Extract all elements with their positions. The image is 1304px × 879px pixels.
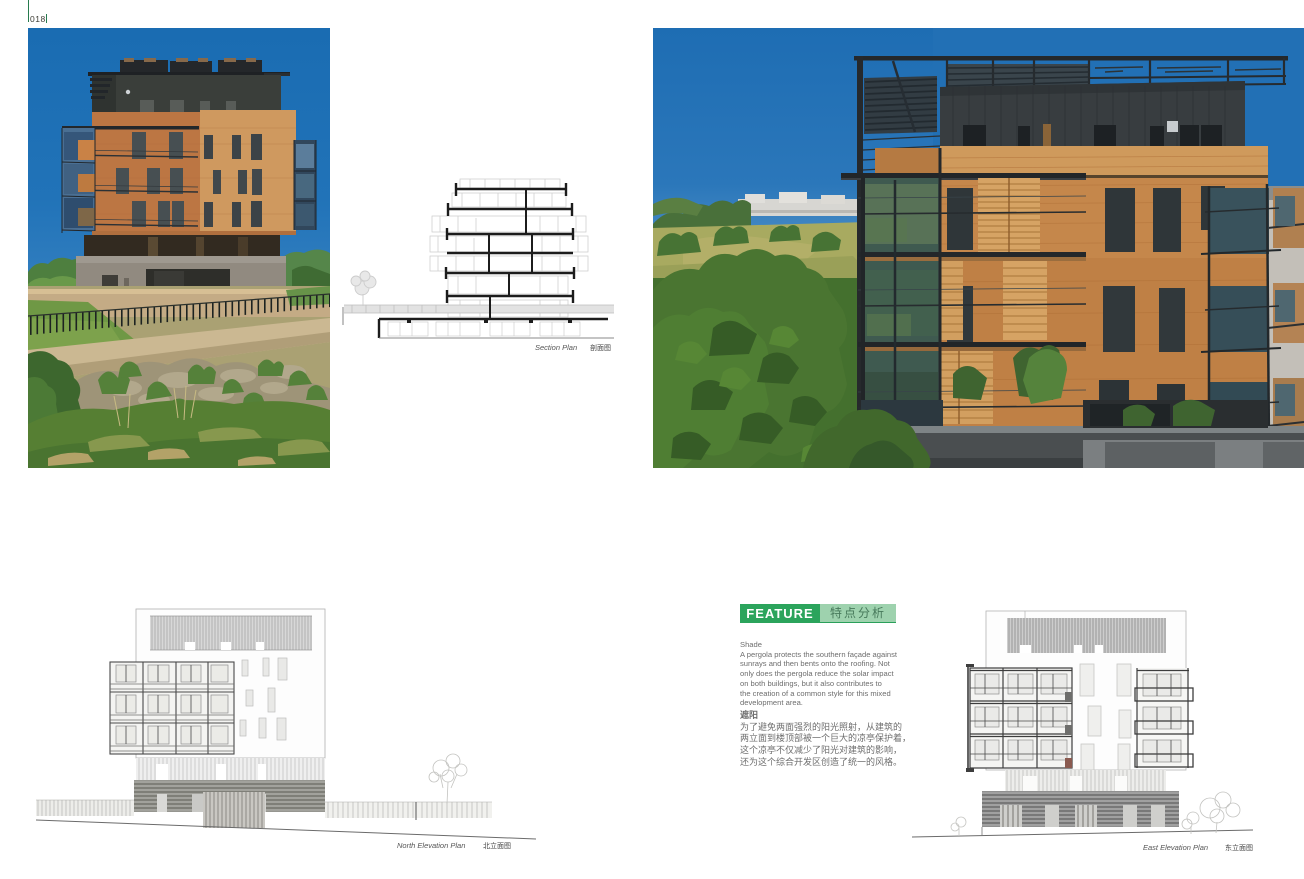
svg-text:East Elevation Plan: East Elevation Plan <box>1143 843 1208 852</box>
svg-text:North Elevation Plan: North Elevation Plan <box>397 841 465 850</box>
svg-text:北立面图: 北立面图 <box>483 841 511 850</box>
svg-text:东立面图: 东立面图 <box>1225 843 1253 852</box>
svg-text:Section Plan: Section Plan <box>535 343 577 352</box>
svg-text:剖面图: 剖面图 <box>590 343 611 352</box>
